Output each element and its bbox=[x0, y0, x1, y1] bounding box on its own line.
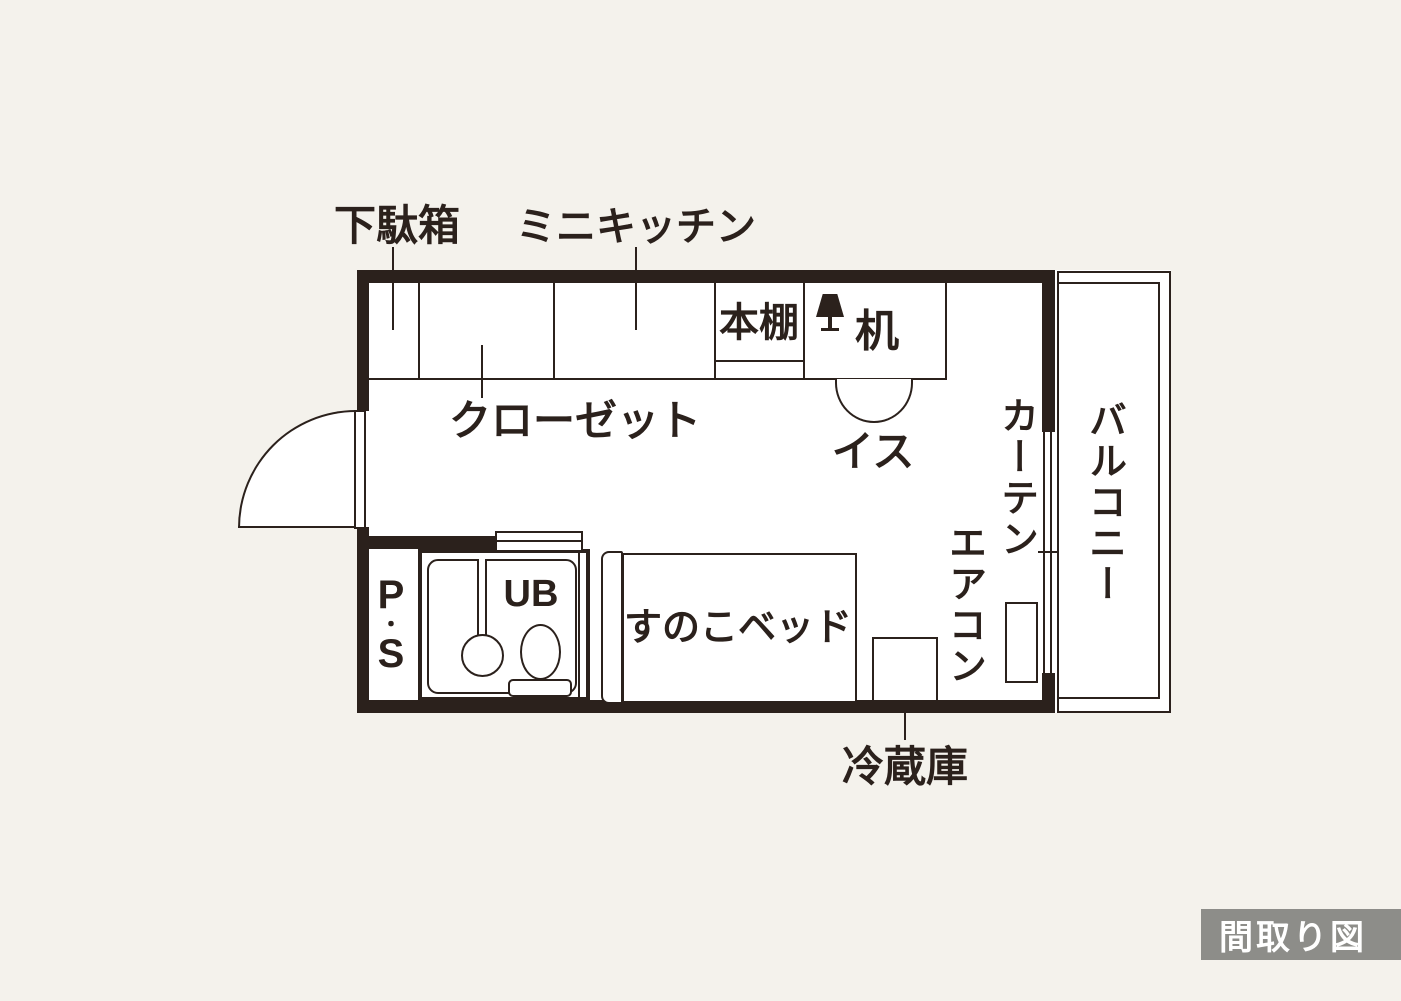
air-conditioner-unit bbox=[1005, 602, 1038, 683]
shoe-cabinet-divider bbox=[418, 283, 420, 380]
balcony-inner-bottom bbox=[1057, 697, 1160, 699]
curtain-label: カーテン bbox=[989, 396, 1044, 560]
refrigerator-outline bbox=[872, 637, 938, 702]
balcony-label: バルコニー bbox=[1077, 400, 1132, 605]
wall-right-lower bbox=[1042, 673, 1055, 713]
desk-right-edge bbox=[945, 283, 947, 380]
bookshelf-right-divider bbox=[803, 283, 805, 380]
unit-bath-right-double-line bbox=[578, 549, 580, 701]
desk-label: 机 bbox=[855, 308, 899, 356]
wall-right-upper bbox=[1042, 270, 1055, 432]
bed-headboard bbox=[601, 551, 623, 704]
mini-kitchen-label: ミニキッチン bbox=[516, 205, 756, 249]
air-conditioner-label: エアコン bbox=[937, 523, 992, 687]
kitchen-divider bbox=[714, 283, 716, 380]
wall-top bbox=[357, 270, 1055, 283]
washbasin-icon bbox=[461, 634, 504, 677]
wall-inner-bath bbox=[357, 536, 495, 549]
floor-plan-title-text: 間取り図 bbox=[1219, 910, 1367, 959]
unit-bath-label: UB bbox=[504, 574, 559, 616]
leader-closet bbox=[481, 345, 483, 398]
refrigerator-label: 冷蔵庫 bbox=[842, 744, 968, 790]
pipe-space-char-s: S bbox=[378, 631, 405, 678]
entrance-door-leaf bbox=[354, 410, 366, 529]
pipe-space-label: P ・ S bbox=[378, 572, 405, 678]
balcony-inner-top bbox=[1057, 282, 1160, 284]
closet-divider bbox=[553, 283, 555, 380]
wall-left-upper bbox=[357, 270, 369, 411]
toilet-tank-icon bbox=[508, 679, 572, 697]
chair-label: イス bbox=[832, 429, 915, 475]
leader-mini-kitchen bbox=[635, 247, 637, 330]
toilet-icon bbox=[520, 624, 561, 680]
pipe-space-char-dot: ・ bbox=[378, 619, 405, 631]
closet-label: クローゼット bbox=[449, 398, 701, 444]
bookshelf-bottom-line bbox=[714, 360, 805, 362]
bed-label: すのこベッド bbox=[624, 608, 852, 650]
balcony-inner-right bbox=[1158, 282, 1160, 699]
floor-plan-page: { "badge": { "label": "間取り図" }, "colors"… bbox=[0, 0, 1401, 1001]
unit-bath-sliding-door-line bbox=[497, 540, 581, 542]
desk-lamp-stem bbox=[828, 317, 832, 328]
bathtub-divider bbox=[477, 559, 487, 637]
desk-lamp-base bbox=[821, 328, 839, 331]
entrance-door-swing-arc bbox=[238, 410, 356, 528]
wall-left-lower bbox=[357, 527, 369, 713]
bookshelf-label: 本棚 bbox=[719, 301, 799, 345]
shoe-cabinet-label: 下駄箱 bbox=[334, 203, 460, 249]
leader-shoe-cabinet bbox=[392, 247, 394, 330]
floor-plan-title-badge: 間取り図 bbox=[1201, 909, 1401, 960]
